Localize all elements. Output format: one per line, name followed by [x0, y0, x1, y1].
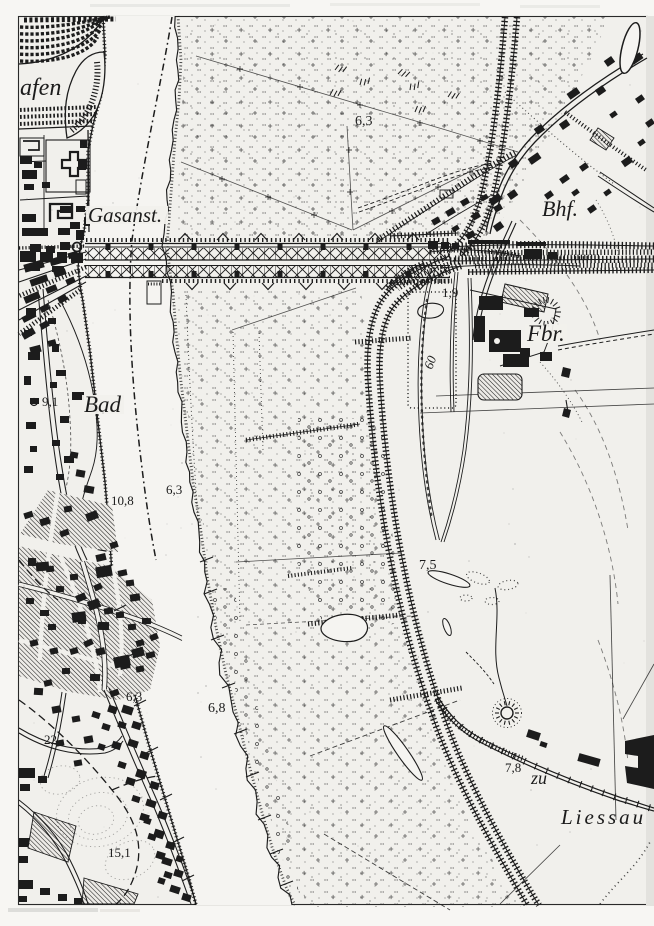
svg-text:Bhf.: Bhf. — [542, 196, 578, 221]
svg-text:1,9: 1,9 — [442, 285, 458, 300]
svg-text:15,1: 15,1 — [108, 845, 131, 860]
svg-text:Liessau: Liessau — [560, 805, 646, 829]
svg-text:7,5: 7,5 — [419, 558, 437, 573]
svg-text:6,3: 6,3 — [355, 114, 373, 129]
svg-text:22: 22 — [44, 732, 57, 747]
svg-text:afen: afen — [20, 75, 61, 101]
svg-text:6,8: 6,8 — [208, 701, 226, 716]
svg-text:Gasanst.: Gasanst. — [88, 203, 162, 227]
svg-text:zu: zu — [530, 768, 547, 788]
svg-text:6,3: 6,3 — [166, 482, 182, 497]
svg-text:Fbr.: Fbr. — [526, 321, 565, 346]
svg-text:7,8: 7,8 — [505, 760, 521, 775]
svg-text:10,8: 10,8 — [111, 493, 134, 508]
svg-text:6,3: 6,3 — [126, 689, 142, 704]
svg-text:9,1: 9,1 — [42, 394, 58, 409]
